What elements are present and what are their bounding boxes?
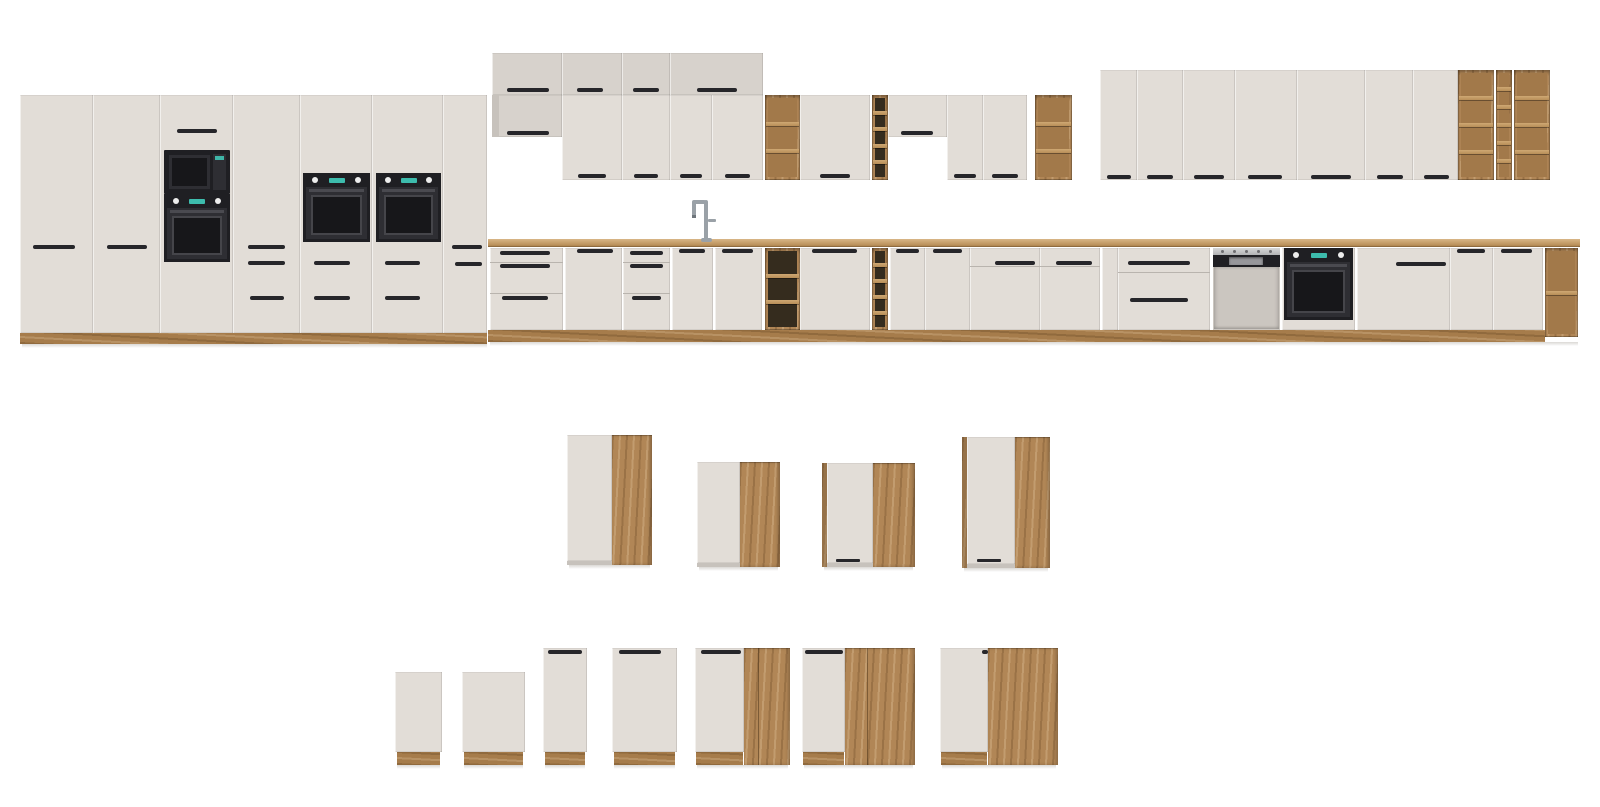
wall-cube-shelf-1 (1458, 70, 1494, 180)
wall-top-box-2-handle (577, 88, 603, 92)
wall-cabinet-c1-handle (1107, 175, 1131, 179)
oven-cab2-drawer-handle-2 (385, 296, 420, 300)
oven-cab1-drawer-handle-2 (314, 296, 350, 300)
appliance-front-panel-1-panel (395, 672, 442, 752)
corner-base-cabinet-2-handle (805, 650, 843, 654)
wall-cube-shelf-1-cell-1 (1461, 73, 1491, 96)
base-front-door-1-plinth (545, 752, 585, 765)
base-front-door-2-panel (612, 648, 677, 752)
semi-integrated-dishwasher-button-2 (1233, 250, 1236, 253)
wall-top-box-3-handle (633, 88, 659, 92)
base-cabinet-2-handle (679, 249, 705, 253)
base-open-shelf-shelf-2 (766, 300, 799, 304)
wall-wine-cube-shelf-2 (1497, 105, 1511, 109)
corner-wall-3-shadow (824, 567, 913, 571)
wall-cabinet-a4-handle (680, 174, 702, 178)
base-drawer-unit-2-seam-0 (623, 262, 670, 263)
built-in-oven-left-knob-left (312, 177, 318, 183)
wall-wine-cube-shelf-3 (1497, 123, 1511, 127)
base-corner-open-shelf-cell-1 (1548, 251, 1575, 291)
base-wine-shelf-cell-5 (875, 315, 885, 327)
wall-wine-cube-shelf-5 (1497, 159, 1511, 163)
wall-cabinet-a1-shade (492, 95, 499, 137)
wall-wine-shelf (872, 95, 888, 180)
base-drawerline-1-handle (995, 261, 1035, 265)
base-drawer2-handle-2 (630, 264, 663, 268)
bottom-row-shadow-1 (397, 765, 440, 769)
base-wine-shelf-shelf-3 (873, 295, 887, 299)
base-cabinet-3 (800, 248, 870, 330)
wall-wine-cube-shelf-1 (1497, 87, 1511, 91)
countertop (488, 239, 1580, 247)
built-in-oven-tower-door-handle (170, 210, 224, 213)
base-drawer1-handle-1 (500, 251, 550, 255)
wall-cube-shelf-1-cell-2 (1461, 100, 1491, 123)
base-front-door-1-panel (543, 648, 587, 752)
corner-base-cabinet-2-plinth (803, 752, 844, 765)
corner-base-cabinet-1-door (695, 648, 744, 752)
base-drawer3-handle-2 (1130, 298, 1188, 302)
base-wine-shelf-cell-2 (875, 267, 885, 279)
corner-base-cabinet-1-wood-panel (744, 648, 790, 765)
wall-cabinet-b1-handle (820, 174, 850, 178)
built-in-oven-tower (164, 194, 230, 262)
wall-wine-cube-cell-6 (1499, 163, 1509, 177)
wall-cabinet-c3-handle (1194, 175, 1224, 179)
base-drawerline-2-seam-0 (1040, 266, 1100, 267)
kitchen-faucet (690, 200, 718, 242)
wall-wine-shelf-shelf-2 (873, 127, 887, 131)
base-corner-open-shelf (1545, 248, 1578, 337)
built-in-microwave-control-panel (213, 154, 226, 190)
wall-open-shelf-1-shelf-2 (766, 149, 799, 153)
built-in-oven-base (1284, 248, 1353, 320)
wall-cube-shelf-2-shelf-1 (1515, 96, 1549, 100)
wall-open-shelf-2-cell-2 (1038, 126, 1069, 150)
built-in-oven-base-knob-left (1293, 252, 1299, 258)
wall-wine-shelf-cell-1 (875, 98, 885, 111)
corner-wall-cabinet-3-handle (836, 559, 860, 562)
built-in-oven-right (376, 173, 441, 242)
tower-top-door-handle (177, 129, 217, 133)
corner-wall-cabinet-4-handle (977, 559, 1001, 562)
built-in-microwave-display (215, 156, 224, 160)
semi-integrated-dishwasher-button-1 (1221, 250, 1224, 253)
wall-cube-shelf-1-shelf-2 (1459, 123, 1493, 127)
appliance-front-panel-2 (462, 672, 525, 765)
corner-base-cabinet-1-wood-seam (758, 648, 759, 765)
scene: Product render sheet of a modular kitche… (0, 0, 1600, 807)
wall-top-box-4-handle (697, 88, 737, 92)
semi-integrated-dishwasher (1213, 248, 1280, 330)
wall-wine-shelf-shelf-1 (873, 111, 887, 115)
tall-cabinet-1-handle (33, 245, 75, 249)
base-front-door-2-plinth (614, 752, 675, 765)
corner-wall-cabinet-2-wood-side-panel (740, 462, 780, 567)
corner-wall-cabinet-1 (567, 435, 652, 565)
appliance-front-panel-1-plinth (397, 752, 440, 765)
corner-wall-cabinet-3-door (827, 463, 873, 563)
appliance-front-panel-1 (395, 672, 442, 765)
corner-base-cabinet-3-handle (982, 650, 988, 654)
base-wine-shelf (872, 248, 888, 330)
kitchen-faucet-lever (708, 219, 716, 222)
wall-wine-cube-cell-5 (1499, 145, 1509, 159)
base-drawer1-handle-3 (502, 296, 548, 300)
wall-open-shelf-2-shelf-1 (1036, 122, 1071, 126)
base-run-floor-shadow (490, 342, 1578, 346)
base-cabinet-4-handle (896, 249, 919, 253)
wall-open-shelf-2-shelf-2 (1036, 149, 1071, 153)
wall-cabinet-c4 (1235, 70, 1297, 180)
corner-base-cabinet-3-door (940, 648, 988, 752)
wall-wine-cube-cell-4 (1499, 127, 1509, 141)
corner-wall-cabinet-4-wood-side-panel (1015, 437, 1050, 568)
tall-cabinet-5-handle-1 (452, 245, 482, 249)
wall-cabinet-c4-handle (1248, 175, 1282, 179)
wall-open-shelf-1-cell-1 (768, 98, 797, 122)
wall-cabinet-a5-handle (725, 174, 750, 178)
corner-wall-cabinet-4 (962, 437, 1050, 568)
corner-base-cabinet-2 (802, 648, 915, 765)
corner-wall-cabinet-3 (822, 463, 915, 567)
wall-cabinet-a3 (622, 95, 670, 180)
base-wine-shelf-shelf-4 (873, 311, 887, 315)
tall-cabinet-5 (443, 95, 487, 333)
wall-cube-shelf-2-cell-3 (1517, 127, 1547, 150)
base-corner-open-shelf-cell-2 (1548, 295, 1575, 335)
corner-base-cabinet-1-plinth (696, 752, 743, 765)
wall-cabinet-a3-handle (634, 174, 658, 178)
base-cabinet-1-handle (577, 249, 613, 253)
tall-run-plinth (20, 333, 487, 344)
built-in-microwave (164, 150, 230, 194)
semi-integrated-dishwasher-steel-strip (1213, 248, 1280, 255)
appliance-front-panel-2-panel (462, 672, 525, 752)
built-in-oven-left-door-handle (309, 189, 364, 192)
base-front-door-1 (543, 648, 587, 765)
wall-open-shelf-1-cell-2 (768, 126, 797, 150)
tall-drawer-handle-3 (250, 296, 284, 300)
semi-integrated-dishwasher-handle-recess (1229, 257, 1263, 265)
base-run-plinth (488, 330, 1545, 342)
tall-cabinet-2-handle (107, 245, 147, 249)
wall-cabinet-c2 (1137, 70, 1183, 180)
wall-cube-shelf-2 (1514, 70, 1550, 180)
wall-open-shelf-1 (765, 95, 800, 180)
wall-cabinet-c2-handle (1147, 175, 1173, 179)
built-in-oven-left (303, 173, 370, 242)
semi-integrated-dishwasher-button-5 (1269, 250, 1272, 253)
wall-wine-shelf-cell-4 (875, 148, 885, 161)
corner-base-cabinet-3-wood-panel (988, 648, 1058, 765)
base-open-shelf-shelf-1 (766, 274, 799, 278)
corner-base-cabinet-2-wood-panel (845, 648, 915, 765)
wall-cube-shelf-1-shelf-3 (1459, 150, 1493, 154)
base-cabinet-7-handle (1457, 249, 1485, 253)
bottom-row-shadow-7 (942, 765, 1056, 769)
corner-wall-cabinet-1-door (567, 435, 612, 561)
base-wine-shelf-cell-4 (875, 299, 885, 311)
tall-cabinet-2 (93, 95, 160, 333)
base-drawer-unit-1 (490, 248, 563, 330)
wall-cabinet-b3 (947, 95, 983, 180)
wall-cabinet-b3-handle (954, 174, 976, 178)
base-drawer-unit-1-seam-0 (490, 262, 563, 263)
wall-wine-shelf-cell-3 (875, 131, 885, 144)
bottom-row-shadow-2 (464, 765, 523, 769)
built-in-oven-right-knob-left (385, 177, 391, 183)
wall-wine-shelf-cell-2 (875, 115, 885, 128)
corner-base-cabinet-3 (940, 648, 1058, 765)
base-cabinet-5 (925, 248, 970, 330)
corner-wall-cabinet-3-wood-side-panel (873, 463, 915, 567)
kitchen-faucet-spout-tip (692, 215, 696, 218)
corner-wall-1-shadow (569, 565, 650, 569)
built-in-oven-tower-knob-right (215, 198, 221, 204)
built-in-oven-tower-knob-left (173, 198, 179, 204)
base-wine-shelf-shelf-2 (873, 279, 887, 283)
base-front-door-2 (612, 648, 677, 765)
wall-open-shelf-1-cell-3 (768, 153, 797, 177)
wall-open-shelf-2-cell-1 (1038, 98, 1069, 122)
wall-cabinet-b4 (983, 95, 1027, 180)
base-drawer-unit-2-seam-1 (623, 293, 670, 294)
wall-cube-shelf-1-shelf-1 (1459, 96, 1493, 100)
base-drawerline-2-handle (1056, 261, 1092, 265)
base-drawer-unit-3-seam-0 (1118, 272, 1210, 273)
base-drawer3-handle-1 (1128, 261, 1190, 265)
base-cabinet-1 (565, 248, 622, 330)
base-drawer-unit-2 (623, 248, 670, 330)
bottom-row-shadow-4 (614, 765, 675, 769)
oven-cab2-drawer-handle-1 (385, 261, 420, 265)
wall-cube-shelf-1-cell-3 (1461, 127, 1491, 150)
corner-base-cabinet-3-plinth (941, 752, 987, 765)
base-drawer1-handle-2 (500, 264, 550, 268)
base-cabinet-2 (672, 248, 713, 330)
wall-cabinet-c7-handle (1424, 175, 1449, 179)
base-cabinet-7 (1450, 248, 1493, 330)
wall-cabinet-c3 (1183, 70, 1235, 180)
base-cabinet-3-handle (812, 249, 857, 253)
wall-top-box-1-handle (507, 88, 549, 92)
base-drawer2-handle-3 (632, 296, 661, 300)
bottom-row-shadow-5 (697, 765, 788, 769)
kitchen-faucet-base (701, 238, 712, 242)
wall-wine-cube-cell-1 (1499, 73, 1509, 87)
built-in-oven-base-door-handle (1290, 264, 1347, 267)
wall-cabinet-b4-handle (992, 174, 1018, 178)
built-in-oven-right-display (401, 178, 417, 183)
base-cabinet-6-handle (1396, 262, 1446, 266)
base-drawerline-1-seam-0 (970, 266, 1040, 267)
corner-wall-cabinet-2-door (697, 462, 740, 563)
corner-wall-cabinet-4-door (967, 437, 1015, 564)
tall-run-floor-shadow (22, 344, 487, 348)
wall-cabinet-c7 (1413, 70, 1458, 180)
wall-cabinet-b2-handle (901, 131, 933, 135)
built-in-oven-right-knob-right (426, 177, 432, 183)
base-drawer-unit-1-seam-1 (490, 293, 563, 294)
wall-wine-shelf-shelf-4 (873, 160, 887, 164)
kitchen-faucet-spout-drop (692, 202, 696, 215)
base-open-shelf-cell-1 (768, 251, 797, 274)
wall-cube-shelf-2-cell-1 (1517, 73, 1547, 96)
wall-wine-shelf-shelf-3 (873, 144, 887, 148)
wall-cabinet-a2 (562, 95, 622, 180)
wall-cabinet-c6 (1365, 70, 1413, 180)
built-in-microwave-window (172, 158, 207, 186)
oven-cab1-drawer-handle-1 (314, 261, 350, 265)
wall-wine-cube (1496, 70, 1512, 180)
wall-cube-shelf-2-cell-2 (1517, 100, 1547, 123)
appliance-front-panel-2-plinth (464, 752, 523, 765)
corner-wall-cabinet-2 (697, 462, 780, 567)
base-sink-cabinet (715, 248, 762, 330)
base-wine-shelf-cell-3 (875, 283, 885, 295)
base-cabinet-8-handle (1501, 249, 1532, 253)
corner-base-cabinet-1-handle (701, 650, 741, 654)
tall-cabinet-5-handle-2 (455, 262, 482, 266)
built-in-oven-base-knob-right (1338, 252, 1344, 258)
wall-cabinet-a1-handle (507, 131, 549, 135)
tall-drawer-handle-1 (248, 245, 285, 249)
tall-cabinet-1 (20, 95, 93, 333)
semi-integrated-dishwasher-front-panel (1214, 267, 1279, 329)
base-front-door-2-handle (619, 650, 661, 654)
base-corner-open-shelf-shelf-1 (1546, 291, 1577, 295)
wall-cabinet-c5-handle (1311, 175, 1351, 179)
built-in-oven-tower-window (172, 216, 222, 255)
wall-wine-cube-cell-3 (1499, 109, 1509, 123)
wall-cube-shelf-2-shelf-2 (1515, 123, 1549, 127)
base-drawer2-handle-1 (630, 251, 663, 255)
base-cabinet-6 (1357, 248, 1450, 330)
wall-cabinet-c5 (1297, 70, 1365, 180)
base-filler (1102, 248, 1118, 330)
corner-base-cabinet-2-door (802, 648, 845, 752)
wall-cabinet-c6-handle (1377, 175, 1403, 179)
base-sink-cabinet-handle (722, 249, 753, 253)
base-cabinet-4 (890, 248, 925, 330)
wall-cabinet-a4 (670, 95, 712, 180)
built-in-oven-right-door-handle (382, 189, 435, 192)
wall-wine-cube-shelf-4 (1497, 141, 1511, 145)
wall-wine-cube-cell-2 (1499, 91, 1509, 105)
built-in-oven-base-window (1292, 270, 1345, 313)
wall-open-shelf-2-cell-3 (1038, 153, 1069, 177)
semi-integrated-dishwasher-button-4 (1257, 250, 1260, 253)
built-in-oven-tower-display (189, 199, 205, 204)
base-front-door-1-handle (548, 650, 582, 654)
semi-integrated-dishwasher-button-3 (1245, 250, 1248, 253)
base-open-shelf (765, 248, 800, 330)
corner-base-cabinet-1 (695, 648, 790, 765)
wall-wine-shelf-cell-5 (875, 164, 885, 177)
wall-cube-shelf-2-cell-4 (1517, 154, 1547, 177)
base-wine-shelf-shelf-1 (873, 263, 887, 267)
wall-cabinet-c1 (1100, 70, 1137, 180)
wall-open-shelf-1-shelf-1 (766, 122, 799, 126)
base-cabinet-5-handle (933, 249, 962, 253)
built-in-oven-left-knob-right (355, 177, 361, 183)
bottom-row-shadow-3 (545, 765, 585, 769)
built-in-oven-left-window (311, 195, 362, 235)
tall-drawer-handle-2 (248, 261, 285, 265)
built-in-oven-right-window (384, 195, 433, 235)
corner-wall-2-shadow (699, 567, 778, 571)
built-in-oven-left-display (329, 178, 345, 183)
wall-cabinet-a5 (712, 95, 763, 180)
corner-wall-4-shadow (964, 568, 1048, 572)
corner-wall-cabinet-1-wood-side-panel (612, 435, 652, 565)
built-in-oven-base-display (1311, 253, 1327, 258)
base-open-shelf-cell-2 (768, 278, 797, 301)
corner-base-cabinet-2-wood-seam (867, 648, 868, 765)
base-cabinet-8 (1493, 248, 1543, 330)
bottom-row-shadow-6 (804, 765, 913, 769)
wall-cabinet-a2-handle (578, 174, 606, 178)
wall-cube-shelf-2-shelf-3 (1515, 150, 1549, 154)
wall-cabinet-b1 (800, 95, 870, 180)
base-open-shelf-cell-3 (768, 304, 797, 327)
base-wine-shelf-cell-1 (875, 251, 885, 263)
wall-open-shelf-2 (1035, 95, 1072, 180)
wall-cube-shelf-1-cell-4 (1461, 154, 1491, 177)
